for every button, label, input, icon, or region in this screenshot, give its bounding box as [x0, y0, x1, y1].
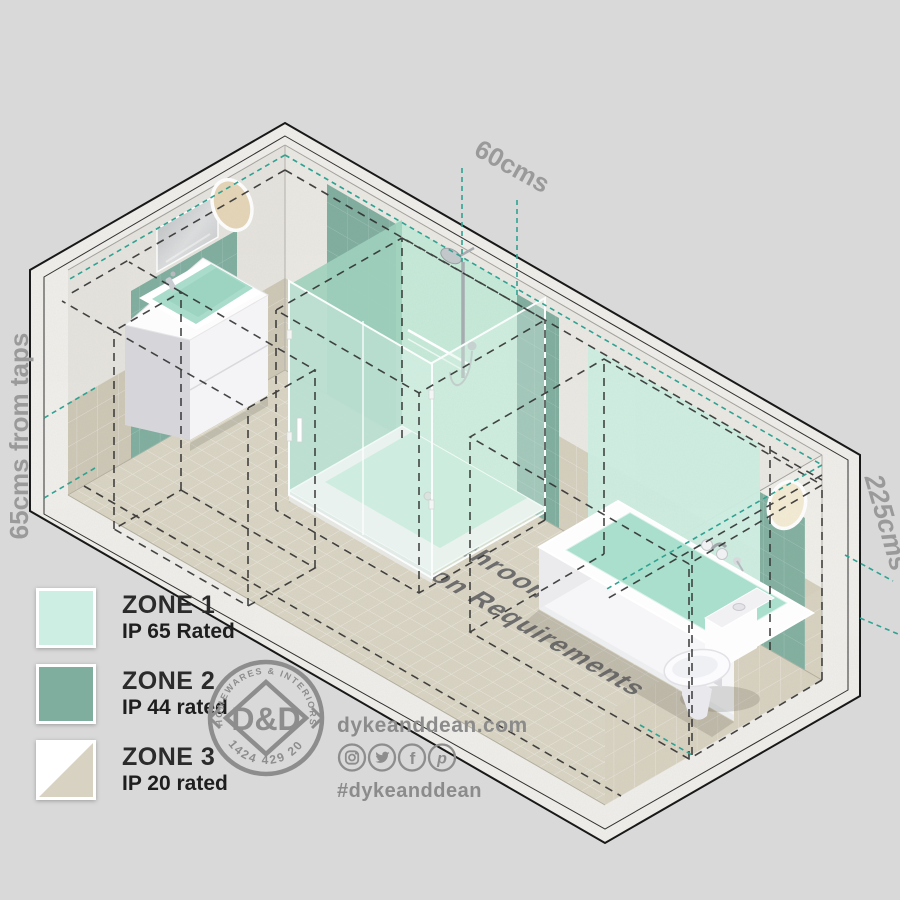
- shower-door-handle: [297, 418, 302, 442]
- svg-text:p: p: [436, 751, 447, 768]
- zone1-label: ZONE 1: [122, 592, 235, 619]
- zone3-swatch: [36, 740, 96, 800]
- zone1-rating: IP 65 Rated: [122, 619, 235, 644]
- facebook-icon[interactable]: f: [399, 745, 425, 771]
- website-link[interactable]: dykeanddean.com: [337, 714, 528, 738]
- zone1-swatch: [36, 588, 96, 648]
- dimension-left: 65cms from taps: [4, 333, 34, 540]
- flush-button: [733, 604, 745, 611]
- zone2-swatch: [36, 664, 96, 724]
- instagram-icon[interactable]: [339, 745, 365, 771]
- svg-text:f: f: [410, 749, 416, 768]
- legend-item-zone1: ZONE 1 IP 65 Rated: [36, 588, 235, 648]
- dimension-right: 225cms: [858, 470, 900, 574]
- dykeanddean-stamp-logo: HOMEWARES & INTERIORS 01424 429 202 D&D: [204, 656, 328, 780]
- pinterest-icon[interactable]: p: [429, 745, 455, 771]
- brand-footer: dykeanddean.com f: [337, 714, 528, 803]
- stamp-monogram: D&D: [231, 701, 300, 737]
- twitter-icon[interactable]: [369, 745, 395, 771]
- hashtag-text: #dykeanddean: [337, 780, 528, 803]
- dimension-top: 60cms: [470, 133, 555, 198]
- social-icons-row: f p: [337, 742, 528, 778]
- infographic-canvas: IP Rated Bathroom Lighting Zone Position…: [0, 0, 900, 900]
